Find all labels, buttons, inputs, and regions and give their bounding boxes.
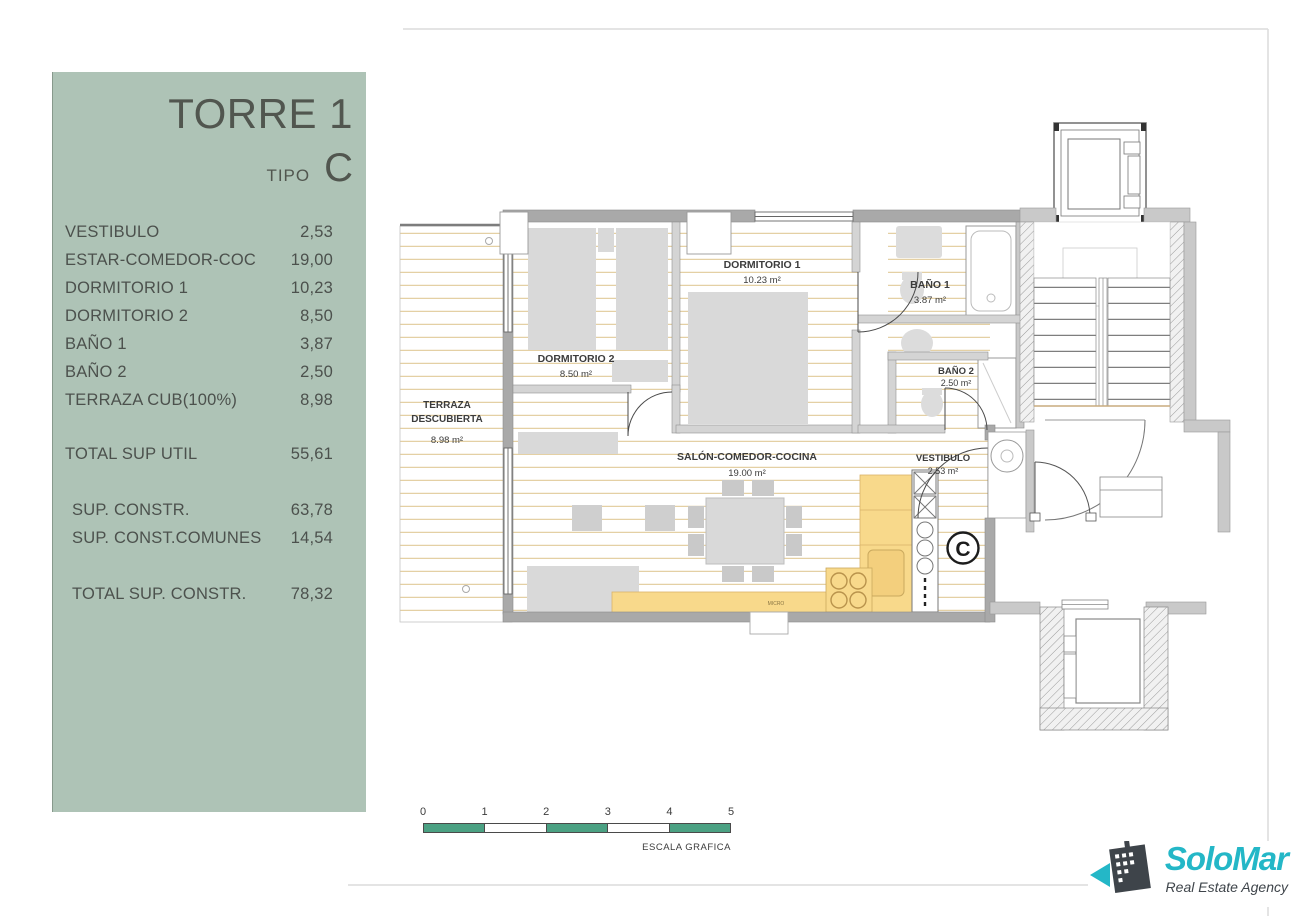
area-row-value: 19,00 [291, 251, 333, 270]
area-row: DORMITORIO 2 8,50 [53, 302, 366, 330]
scale-tick: 0 [420, 806, 426, 818]
logo-text: SoloMar Real Estate Agency [1158, 841, 1288, 895]
logo-brand: SoloMar [1158, 841, 1288, 877]
total-util-label: TOTAL SUP UTIL [65, 445, 197, 464]
sideboard [518, 432, 618, 454]
label-bano2-area: 2.50 m² [941, 378, 972, 388]
tipo-value: C [324, 146, 353, 191]
label-bano2: BAÑO 2 [938, 366, 974, 377]
landing [988, 420, 1230, 532]
scale-tick: 2 [543, 806, 549, 818]
area-row-value: 2,50 [300, 363, 333, 382]
stairwell [1020, 208, 1196, 520]
label-bano1: BAÑO 1 [910, 278, 950, 291]
dining-table [706, 498, 784, 564]
bed [528, 228, 596, 350]
scale-ticks: 0 1 2 3 4 5 [423, 806, 731, 820]
area-row-label: DORMITORIO 1 [65, 279, 188, 298]
label-bano1-area: 3.87 m² [914, 295, 946, 306]
constr-row-value: 14,54 [291, 529, 333, 548]
constr-row-value: 63,78 [291, 501, 333, 520]
area-row-label: VESTIBULO [65, 223, 159, 242]
scale-tick: 1 [482, 806, 488, 818]
label-salon: SALÓN-COMEDOR-COCINA [677, 450, 817, 463]
area-row-value: 10,23 [291, 279, 333, 298]
total-constr-row: TOTAL SUP. CONSTR. 78,32 [53, 580, 366, 608]
area-row-value: 3,87 [300, 335, 333, 354]
elevator-top [1054, 123, 1146, 223]
stair-flight [1034, 278, 1096, 406]
total-constr-value: 78,32 [291, 585, 333, 604]
bed [616, 228, 668, 350]
label-dormitorio2: DORMITORIO 2 [538, 353, 615, 365]
scale-tick: 4 [666, 806, 672, 818]
tower-title: TORRE 1 [168, 90, 353, 138]
area-row-value: 2,53 [300, 223, 333, 242]
label-vestibulo: VESTIBULO [916, 453, 970, 464]
elevator-bottom [990, 600, 1206, 730]
bed [688, 292, 808, 424]
total-util-value: 55,61 [291, 445, 333, 464]
area-row: BAÑO 2 2,50 [53, 358, 366, 386]
label-dormitorio2-area: 8.50 m² [560, 369, 592, 380]
kitchen-sink [868, 550, 904, 596]
label-salon-area: 19.00 m² [728, 468, 766, 479]
area-row: VESTIBULO 2,53 [53, 218, 366, 246]
doormat [1100, 477, 1162, 517]
area-row: BAÑO 1 3,87 [53, 330, 366, 358]
elevator-cabin [1068, 139, 1120, 209]
pillar [500, 212, 528, 254]
label-dormitorio1: DORMITORIO 1 [724, 259, 801, 271]
scale-tick: 5 [728, 806, 734, 818]
armchair [572, 505, 602, 531]
micro-label: MICRO [768, 601, 785, 607]
elevator-cabin [1076, 619, 1140, 703]
area-row-label: ESTAR-COMEDOR-COC [65, 251, 256, 270]
unit-type-letter: C [955, 538, 970, 561]
constr-row-label: SUP. CONSTR. [72, 501, 190, 520]
floorplan-sheet: { "panel": { "title": "TORRE 1", "tipo_l… [0, 0, 1300, 919]
label-terraza-1: TERRAZA [423, 400, 471, 411]
tipo-line: TIPO C [266, 146, 353, 191]
constr-row-label: SUP. CONST.COMUNES [72, 529, 261, 548]
graphic-scale: 0 1 2 3 4 5 ESCALA GRAFICA [423, 806, 731, 853]
armchair [645, 505, 675, 531]
nightstand [598, 228, 614, 252]
area-rows: VESTIBULO 2,53 ESTAR-COMEDOR-COC 19,00 D… [53, 218, 366, 414]
constr-row: SUP. CONST.COMUNES 14,54 [53, 524, 366, 552]
washing-machine [991, 440, 1023, 472]
area-row: DORMITORIO 1 10,23 [53, 274, 366, 302]
utility-column [912, 470, 938, 612]
unit-type-marker: C [948, 533, 979, 564]
pillar [750, 612, 788, 634]
stair-flight [1108, 278, 1170, 406]
area-row: TERRAZA CUB(100%) 8,98 [53, 386, 366, 414]
total-constr-label: TOTAL SUP. CONSTR. [72, 585, 246, 604]
dresser [612, 360, 668, 382]
scale-tick: 3 [605, 806, 611, 818]
tipo-label: TIPO [266, 166, 310, 186]
area-row-value: 8,50 [300, 307, 333, 326]
area-row-label: TERRAZA CUB(100%) [65, 391, 237, 410]
solomar-logo: SoloMar Real Estate Agency [1088, 841, 1288, 907]
label-dormitorio1-area: 10.23 m² [743, 275, 781, 286]
area-row-label: BAÑO 2 [65, 363, 127, 382]
label-vestibulo-area: 2.53 m² [928, 466, 959, 476]
total-util-row: TOTAL SUP UTIL 55,61 [53, 440, 366, 468]
building-icon [1088, 841, 1154, 901]
area-row-value: 8,98 [300, 391, 333, 410]
shower-tray [896, 226, 942, 258]
logo-tagline: Real Estate Agency [1158, 879, 1288, 895]
scale-caption: ESCALA GRAFICA [423, 842, 731, 853]
area-row-label: BAÑO 1 [65, 335, 127, 354]
label-terraza-area: 8.98 m² [431, 435, 463, 446]
pillar [687, 212, 731, 254]
area-row: ESTAR-COMEDOR-COC 19,00 [53, 246, 366, 274]
summary-panel: TORRE 1 TIPO C VESTIBULO 2,53 ESTAR-COME… [52, 72, 366, 812]
constr-row: SUP. CONSTR. 63,78 [53, 496, 366, 524]
scale-bar [423, 823, 731, 833]
area-row-label: DORMITORIO 2 [65, 307, 188, 326]
label-terraza-2: DESCUBIERTA [411, 414, 482, 425]
